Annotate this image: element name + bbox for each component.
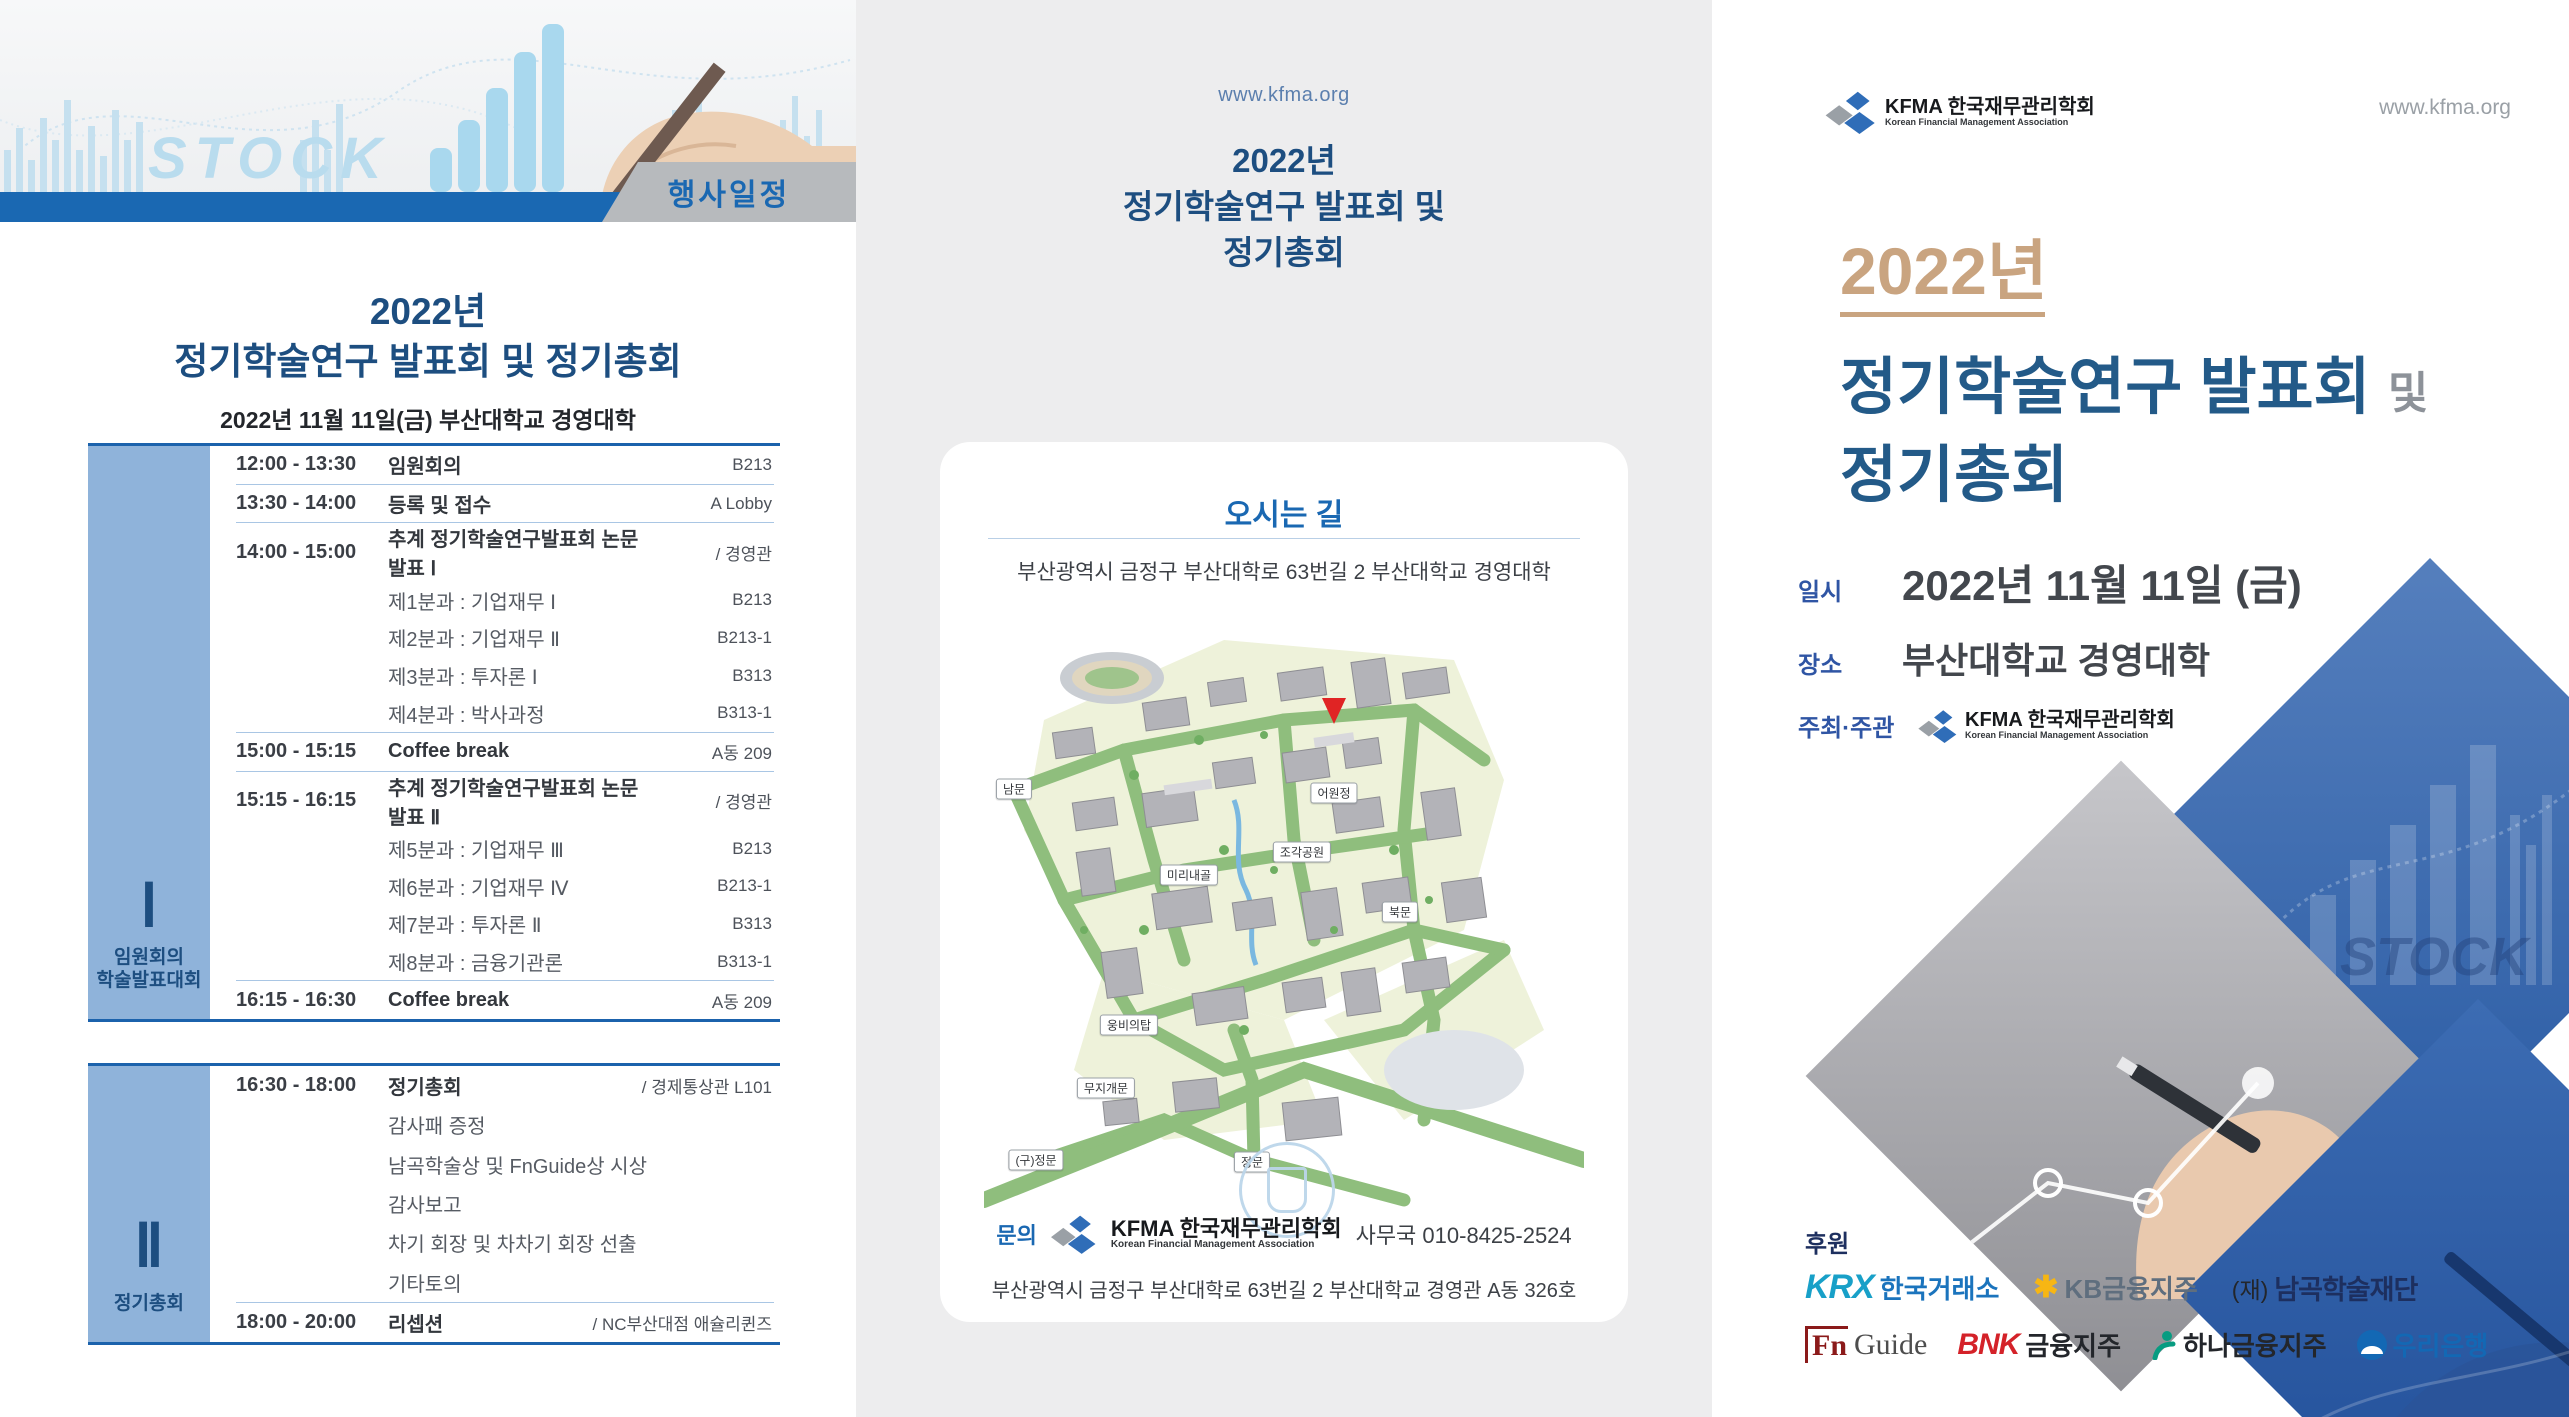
office-address: 부산광역시 금정구 부산대학로 63번길 2 부산대학교 경영관 A동 326호 [940,1274,1628,1303]
table-row: 남곡학술상 및 FnGuide상 시상 [236,1145,774,1184]
kfma-logo-icon [1918,709,1958,743]
sponsor-woori: 우리은행 [2357,1326,2489,1363]
title-line: 2022년 [856,138,1712,184]
schedule-rows: 16:30 - 18:00정기총회/ 경제통상관 L101감사패 증정남곡학술상… [210,1066,780,1342]
map-label: 남문 [996,779,1032,800]
map-label: 웅비의탑 [1100,1015,1158,1036]
table-row: 15:15 - 16:15추계 정기학술연구발표회 논문 발표 Ⅱ/ 경영관 [236,772,774,830]
directions-card: 오시는 길 부산광역시 금정구 부산대학로 63번길 2 부산대학교 경영대학 [940,442,1628,1322]
table-row: 18:00 - 20:00리셉션/ NC부산대점 애슐리퀸즈 [236,1303,774,1342]
directions-heading: 오시는 길 [940,490,1628,534]
sponsor-namgok: (재) 남곡학술재단 [2232,1268,2418,1307]
schedule-tab: 행사일정 [602,162,856,222]
contact-label: 문의 [996,1218,1036,1250]
section-1-sidebar: Ⅰ 임원회의학술발표대회 [88,446,210,1019]
table-row: 제6분과 : 기업재무 ⅣB213-1 [236,867,774,905]
host-row: 주최·주관 KFMA 한국재무관리학회 Korean Financial Man… [1798,708,2175,743]
table-row: 12:00 - 13:30임원회의B213 [236,446,774,485]
stock-word: STOCK [148,126,390,191]
table-row: 15:00 - 15:15Coffee breakA동 209 [236,733,774,772]
kb-star-icon: ✱ [2033,1270,2058,1305]
org-name-block: KFMA 한국재무관리학회 Korean Financial Managemen… [1885,97,2095,128]
table-row: 감사패 증정 [236,1105,774,1144]
campus-address: 부산광역시 금정구 부산대학로 63번길 2 부산대학교 경영대학 [940,556,1628,586]
title-line: 정기총회 [856,230,1712,276]
sponsor-row-2: Fn Guide BNK 금융지주 하나금융지주 우리은행 [1805,1326,2488,1363]
section-2-numeral: Ⅱ [134,1216,164,1276]
contact-phone: 사무국 010-8425-2524 [1356,1218,1572,1250]
contact-row: 문의 KFMA 한국재무관리학회 Korean Financial Manage… [940,1214,1628,1254]
schedule-section-2: Ⅱ 정기총회 16:30 - 18:00정기총회/ 경제통상관 L101감사패 … [88,1063,780,1345]
section-2-label: 정기총회 [114,1292,184,1316]
cover-title-line1: 정기학술연구 발표회 및 [1840,336,2428,426]
hana-logo-icon [2151,1330,2177,1360]
org-name-en: Korean Financial Management Association [1111,1240,1342,1251]
table-row: 제7분과 : 투자론 ⅡB313 [236,905,774,943]
sponsor-bnk: BNK 금융지주 [1957,1326,2121,1363]
host-label: 주최·주관 [1798,708,1902,743]
woori-logo-icon [2357,1330,2387,1360]
place-label: 장소 [1798,645,1902,680]
map-label: 조각공원 [1273,842,1331,863]
divider [988,538,1580,539]
table-row: 제4분과 : 박사과정B313-1 [236,694,774,733]
org-name: KFMA 한국재무관리학회 [1965,710,2175,731]
svg-text:STOCK: STOCK [2340,927,2532,987]
table-row: 제8분과 : 금융기관론B313-1 [236,943,774,982]
schedule-header: STOCK 행사일정 [0,0,856,222]
fnguide-logo: Fn [1805,1326,1848,1363]
title-line: 정기학술연구 발표회 및 [856,184,1712,230]
org-name-en: Korean Financial Management Association [1965,731,2175,741]
website-url: www.kfma.org [856,84,1712,107]
sponsor-row-1: KRX 한국거래소 ✱ KB금융지주 (재) 남곡학술재단 [1805,1268,2417,1307]
cover-year: 2022년 [1840,218,2048,314]
kfma-logo-small: KFMA 한국재무관리학회 Korean Financial Managemen… [1918,709,2175,743]
section-1-label: 임원회의학술발표대회 [97,946,202,994]
table-row: 기타토의 [236,1262,774,1302]
table-row: 16:15 - 16:30Coffee breakA동 209 [236,981,774,1019]
event-date-row: 일시 2022년 11월 11일 (금) [1798,552,2302,613]
bnk-logo: BNK [1957,1328,2019,1362]
sponsor-kb: ✱ KB금융지주 [2033,1269,2197,1306]
org-name-en: Korean Financial Management Association [1885,118,2095,128]
map-label: 북문 [1382,902,1418,923]
sponsor-fnguide: Fn Guide [1805,1326,1927,1363]
table-row: 제5분과 : 기업재무 ⅢB213 [236,830,774,868]
krx-logo: KRX [1805,1268,1874,1307]
schedule-subtitle: 2022년 11월 11일(금) 부산대학교 경영대학 [0,401,856,435]
org-name: KFMA 한국재무관리학회 [1885,97,2095,118]
sponsor-krx: KRX 한국거래소 [1805,1268,1999,1307]
place-value: 부산대학교 경영대학 [1902,632,2210,684]
schedule-title: 2022년 정기학술연구 발표회 및 정기총회 2022년 11월 11일(금)… [0,287,856,435]
org-name: KFMA 한국재무관리학회 [1111,1217,1342,1240]
campus-map: 남문미리내골조각공원어원정북문웅비의탑무지개문(구)정문정문 [984,600,1584,1200]
event-place-row: 장소 부산대학교 경영대학 [1798,632,2210,684]
kfma-logo-icon [1825,90,1877,134]
table-row: 차기 회장 및 차차기 회장 선출 [236,1223,774,1262]
map-label: 무지개문 [1077,1078,1135,1099]
header-blue-bar [0,192,648,222]
directions-panel-title: 2022년 정기학술연구 발표회 및 정기총회 [856,138,1712,277]
website-url: www.kfma.org [2379,96,2511,120]
cover-title-main: 정기학술연구 발표회 [1840,353,2371,422]
schedule-tab-label: 행사일정 [668,170,790,214]
brochure: STOCK 행사일정 2022년 정기학술연구 발표회 및 정기총회 2022년… [0,0,2569,1417]
kfma-logo-icon [1051,1214,1097,1254]
sponsor-hana: 하나금융지주 [2151,1326,2327,1363]
schedule-rows: 12:00 - 13:30임원회의B21313:30 - 14:00등록 및 접… [210,446,780,1019]
table-row: 제3분과 : 투자론 ⅠB313 [236,657,774,695]
cover-title-line2: 정기총회 [1840,424,2068,514]
campus-map-art [984,600,1584,1220]
table-row: 16:30 - 18:00정기총회/ 경제통상관 L101 [236,1066,774,1105]
panel-directions: www.kfma.org 2022년 정기학술연구 발표회 및 정기총회 오시는… [856,0,1712,1417]
schedule-title-year: 2022년 [0,287,856,337]
map-label: 어원정 [1310,783,1357,804]
table-row: 제2분과 : 기업재무 ⅡB213-1 [236,619,774,657]
table-row: 감사보고 [236,1184,774,1223]
sponsor-label: 후원 [1805,1224,1849,1259]
divider [1840,312,2045,317]
panel-schedule: STOCK 행사일정 2022년 정기학술연구 발표회 및 정기총회 2022년… [0,0,856,1417]
section-2-sidebar: Ⅱ 정기총회 [88,1066,210,1342]
table-row: 제1분과 : 기업재무 ⅠB213 [236,581,774,619]
date-label: 일시 [1798,572,1902,607]
panel-cover: STOCK [1712,0,2569,1417]
schedule-section-1: Ⅰ 임원회의학술발표대회 12:00 - 13:30임원회의B21313:30 … [88,443,780,1022]
schedule-title-main: 정기학술연구 발표회 및 정기총회 [0,337,856,387]
kfma-logo: KFMA 한국재무관리학회 Korean Financial Managemen… [1825,90,2095,134]
date-value: 2022년 11월 11일 (금) [1902,552,2302,613]
map-label: (구)정문 [1008,1150,1063,1171]
map-label: 미리내골 [1160,865,1218,886]
cover-title-conjunction: 및 [2388,369,2428,418]
table-row: 14:00 - 15:00추계 정기학술연구발표회 논문 발표 Ⅰ/ 경영관 [236,523,774,581]
table-row: 13:30 - 14:00등록 및 접수A Lobby [236,485,774,524]
section-1-numeral: Ⅰ [140,876,158,936]
org-name-block: KFMA 한국재무관리학회 Korean Financial Managemen… [1111,1217,1342,1251]
